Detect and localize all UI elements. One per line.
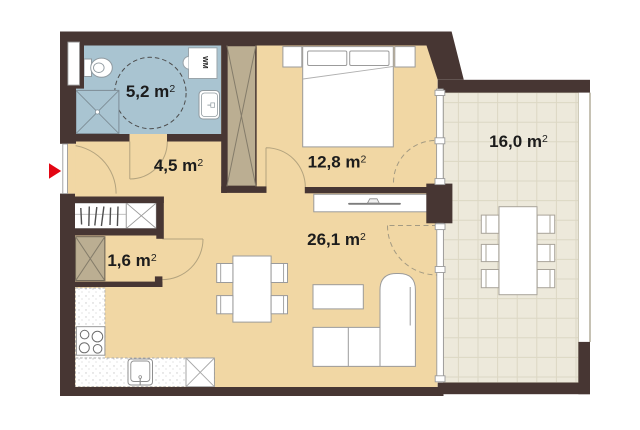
svg-text:12,8 m2: 12,8 m2 <box>308 153 367 172</box>
svg-text:4,5 m2: 4,5 m2 <box>154 156 203 175</box>
svg-text:5,2 m2: 5,2 m2 <box>126 82 175 101</box>
svg-text:1,6 m2: 1,6 m2 <box>107 251 156 270</box>
svg-text:WM: WM <box>201 56 208 69</box>
svg-text:26,1 m2: 26,1 m2 <box>307 230 366 249</box>
svg-text:16,0 m2: 16,0 m2 <box>489 132 548 151</box>
